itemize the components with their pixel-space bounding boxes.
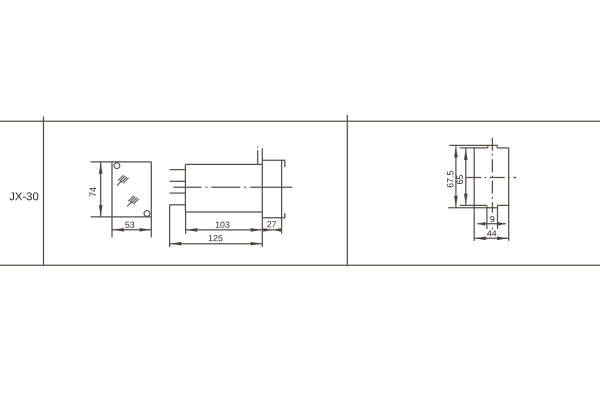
- svg-text:125: 125: [208, 233, 223, 243]
- svg-text:74: 74: [88, 187, 98, 197]
- svg-text:JX-30: JX-30: [9, 191, 39, 203]
- svg-text:103: 103: [215, 220, 230, 230]
- svg-text:44: 44: [487, 228, 497, 238]
- svg-text:65: 65: [455, 175, 465, 185]
- svg-text:9: 9: [490, 214, 495, 224]
- svg-text:27: 27: [267, 219, 277, 229]
- svg-text:53: 53: [125, 220, 135, 230]
- svg-text:67.5: 67.5: [445, 171, 455, 188]
